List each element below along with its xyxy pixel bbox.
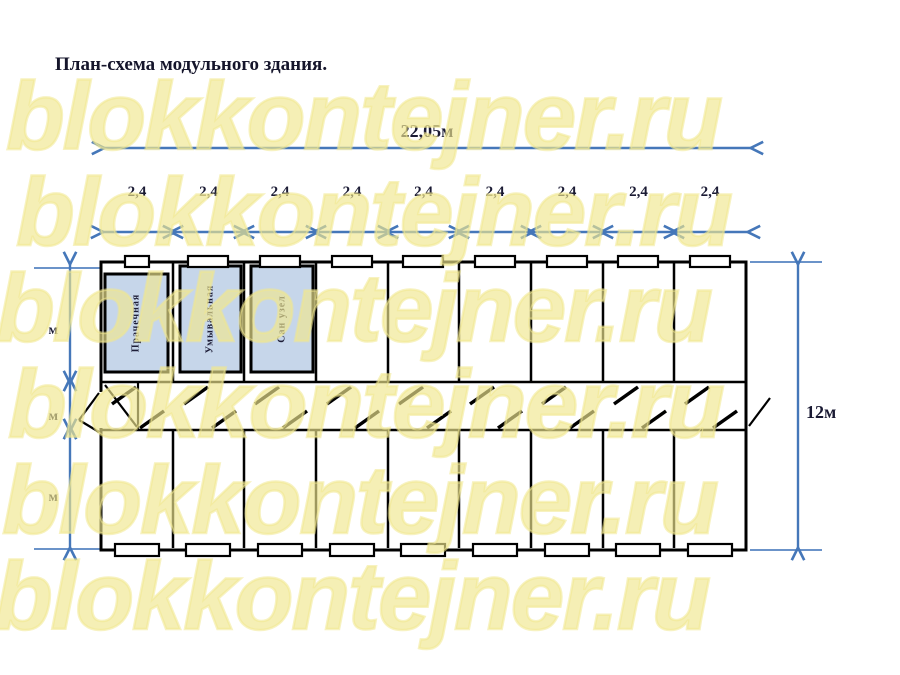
left-dim-label: м [48,490,58,505]
total-width-dimension: 22,05м [104,121,751,148]
module-dividers-top [173,263,674,381]
module-width-dimensions: 2,4 2,4 2,4 2,4 2,4 2,4 2,4 2,4 2,4 [103,184,748,232]
room-label-washroom: Умывальная [205,285,216,354]
module-width-label: 2,4 [128,184,147,200]
module-dividers-bottom [173,431,674,548]
room-label-laundry: Прачечная [131,294,142,353]
right-height-dimension: 12м [798,264,836,548]
door-swing-outer-right [749,398,770,426]
module-width-label: 2,4 [414,184,433,200]
page-title: План-схема модульного здания. [55,54,327,76]
module-width-label: 2,4 [199,184,218,200]
left-dim-label: м [48,409,58,424]
building-height-label: 12м [806,402,836,422]
plan-scheme-page: План-схема модульного здания. 22,05м 2,4… [0,0,900,675]
left-height-dimension: м м м [48,264,70,548]
windows-top [125,256,730,267]
door-swing-outer-left [79,393,99,420]
windows-bottom [115,544,732,556]
module-width-label: 2,4 [629,184,648,200]
module-width-label: 2,4 [558,184,577,200]
room-label-wc: Сан узел [277,295,288,343]
module-width-label: 2,4 [343,184,362,200]
entrance-vestibule [79,382,770,432]
door-swing-outer-left [79,420,99,432]
module-width-label: 2,4 [701,184,720,200]
module-width-label: 2,4 [271,184,290,200]
module-width-label: 2,4 [486,184,505,200]
total-width-label: 22,05м [401,121,454,141]
corridor-hatching [112,387,737,428]
left-dim-label: м [48,323,58,338]
